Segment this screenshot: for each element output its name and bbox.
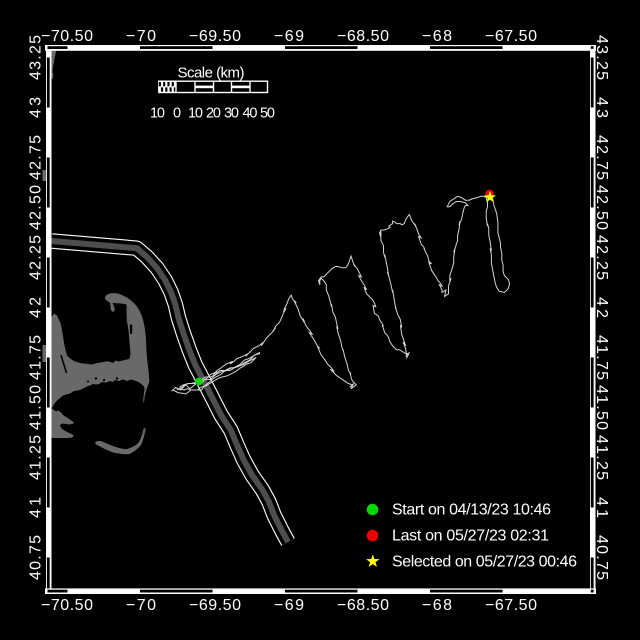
svg-text:30: 30 <box>224 106 239 122</box>
svg-text:−70.50: −70.50 <box>41 28 93 45</box>
svg-text:Selected on 05/27/23 00:46: Selected on 05/27/23 00:46 <box>392 554 577 571</box>
svg-text:−67.50: −67.50 <box>485 597 537 614</box>
svg-text:−70.50: −70.50 <box>41 597 93 614</box>
svg-text:0: 0 <box>173 106 181 122</box>
svg-text:50: 50 <box>260 106 275 122</box>
svg-text:43.25: 43.25 <box>28 35 45 80</box>
svg-text:−69: −69 <box>274 28 304 45</box>
svg-text:−68: −68 <box>422 28 452 45</box>
svg-text:41.50: 41.50 <box>593 385 610 430</box>
svg-text:−67.50: −67.50 <box>485 28 537 45</box>
svg-text:43.25: 43.25 <box>593 35 610 80</box>
svg-text:42.75: 42.75 <box>593 135 610 180</box>
svg-text:41.25: 41.25 <box>28 435 45 480</box>
svg-text:Scale (km): Scale (km) <box>178 65 245 82</box>
svg-text:Start on 04/13/23 10:46: Start on 04/13/23 10:46 <box>392 502 551 519</box>
svg-text:−68.50: −68.50 <box>337 597 389 614</box>
svg-text:40.75: 40.75 <box>593 535 610 580</box>
svg-text:42.75: 42.75 <box>28 135 45 180</box>
svg-text:−68.50: −68.50 <box>337 28 389 45</box>
svg-text:40.75: 40.75 <box>28 535 45 580</box>
svg-text:42.25: 42.25 <box>28 235 45 280</box>
svg-text:41.50: 41.50 <box>28 385 45 430</box>
svg-text:41.75: 41.75 <box>593 335 610 380</box>
svg-text:41.25: 41.25 <box>593 435 610 480</box>
svg-text:−70: −70 <box>126 28 156 45</box>
svg-text:−69: −69 <box>274 597 304 614</box>
svg-text:42.25: 42.25 <box>593 235 610 280</box>
svg-text:42.50: 42.50 <box>28 185 45 230</box>
svg-text:10: 10 <box>188 106 203 122</box>
svg-text:−70: −70 <box>126 597 156 614</box>
svg-text:−69.50: −69.50 <box>189 28 241 45</box>
svg-text:−69.50: −69.50 <box>189 597 241 614</box>
svg-text:Last on 05/27/23 02:31: Last on 05/27/23 02:31 <box>392 528 549 545</box>
svg-text:42.50: 42.50 <box>593 185 610 230</box>
svg-text:20: 20 <box>206 106 221 122</box>
svg-text:10: 10 <box>150 106 165 122</box>
svg-text:40: 40 <box>243 106 258 122</box>
svg-text:41.75: 41.75 <box>28 335 45 380</box>
svg-text:−68: −68 <box>422 597 452 614</box>
